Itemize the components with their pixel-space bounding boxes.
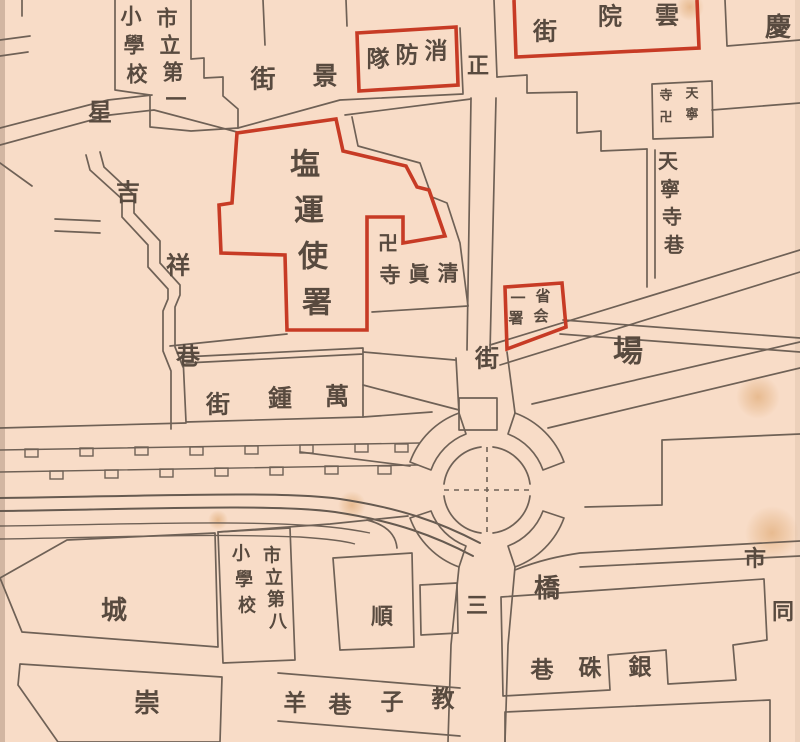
map-label-fire-brigade-box-label: 防 — [396, 42, 419, 69]
map-label-fire-brigade-box-label: 消 — [425, 38, 448, 65]
map-label-school-8-col-left: 小 — [232, 544, 250, 565]
stain-spot — [676, 0, 704, 21]
map-label-school-1-col-right: 一 — [166, 87, 187, 112]
map-label-yunyuan-street-box-label: 雲 — [655, 1, 679, 30]
paper-stains — [208, 0, 799, 560]
map-label-yinzhu-lane: 硃 — [579, 655, 603, 682]
map-label-salt-transport-office: 使 — [297, 240, 329, 275]
map-label-school-8-col-right: 第 — [267, 589, 285, 611]
map-label-wanzhong-street: 鍾 — [268, 384, 292, 413]
map-label-shenghui-box-col-right: 省 — [534, 287, 550, 305]
map-label-san: 三 — [466, 593, 488, 619]
map-labels: 市立第一小學校星景街消防隊正雲院街慶天寧寺卍天寧寺巷塩運使署卍清眞寺省会一署街場… — [88, 1, 794, 720]
map-label-salt-transport-office: 署 — [302, 286, 332, 321]
mosque-south-street — [372, 306, 468, 312]
map-label-yunyuan-street-box-label: 院 — [598, 2, 622, 31]
stain-spot — [208, 510, 228, 530]
map-label-jixiang-lane: 祥 — [166, 251, 190, 280]
chong-block — [18, 664, 222, 742]
salt-office-red-polygon — [219, 119, 445, 330]
map-label-tianning-temple-box-col-right: 寧 — [685, 107, 698, 123]
map-label-yang: 羊 — [284, 690, 307, 717]
map-label-shi-right-edge: 市 — [744, 546, 766, 572]
map-label-tianning-temple-lane: 巷 — [663, 233, 685, 257]
map-label-school-8-col-right: 八 — [269, 612, 288, 633]
map-label-shenghui-box-col-left: 一 — [510, 289, 525, 307]
map-label-jixiang-lane: 巷 — [175, 342, 201, 371]
map-label-yinzhu-lane: 巷 — [530, 657, 555, 684]
map-label-mosque: 寺 — [380, 263, 401, 288]
map-label-zheng: 正 — [467, 53, 489, 79]
map-label-school-1-col-left: 學 — [124, 33, 145, 58]
map-label-salt-transport-office: 塩 — [290, 148, 320, 183]
map-label-shun: 順 — [371, 604, 394, 630]
map-label-tianning-temple-lane: 天 — [658, 149, 679, 173]
map-label-fire-brigade-box-label: 隊 — [367, 46, 391, 73]
tianning-lane-road — [647, 149, 655, 287]
map-label-shenghui-box-col-left: 署 — [507, 309, 523, 327]
map-label-jiaozi-lane: 子 — [381, 689, 404, 716]
bottom-right-building — [505, 700, 770, 742]
map-label-jing-street: 景 — [312, 62, 337, 91]
map-label-mosque: 清 — [438, 261, 459, 286]
zheng-street-main — [467, 98, 496, 352]
cheng-block — [0, 533, 218, 647]
map-label-yunyuan-street-box-label: 街 — [532, 17, 557, 46]
map-label-school-1-col-right: 市 — [157, 6, 178, 31]
map-label-tianning-temple-box-col-left: 卍 — [659, 111, 672, 126]
map-label-star: 星 — [88, 98, 112, 127]
map-label-school-8-col-right: 市 — [263, 545, 281, 567]
map-label-jiaozi-lane: 教 — [432, 686, 456, 713]
map-label-tianning-temple-box-col-right: 天 — [685, 87, 699, 102]
map-label-tianning-temple-box-col-left: 寺 — [659, 88, 672, 104]
plaza-ring-ne — [508, 413, 564, 470]
shun-block — [333, 553, 414, 650]
map-label-cheng: 城 — [101, 596, 127, 626]
paper-edges — [0, 0, 800, 742]
map-label-school-1-col-right: 第 — [163, 60, 184, 85]
map-label-mosque-swastika: 卍 — [378, 231, 398, 255]
map-label-jixiang-lane: 吉 — [116, 178, 140, 207]
stepped-building-outline — [497, 75, 647, 151]
right-edge-shadow — [795, 0, 800, 742]
map-label-school-1-col-left: 小 — [121, 4, 142, 29]
map-label-mosque: 眞 — [409, 262, 430, 287]
east-branch-street — [560, 320, 800, 352]
map-label-wanzhong-street: 街 — [205, 390, 230, 419]
map-label-school-1-col-left: 校 — [127, 62, 149, 87]
plaza-ring-se — [508, 511, 564, 567]
map-label-jie-junction: 街 — [474, 344, 499, 373]
lane-fragments — [263, 0, 347, 45]
map-label-jiaozi-lane: 巷 — [328, 692, 353, 719]
map-label-tianning-temple-lane: 寧 — [660, 177, 680, 201]
left-edge-shadow — [0, 0, 5, 742]
map-label-school-1-col-right: 立 — [160, 33, 181, 58]
map-label-yinzhu-lane: 銀 — [629, 654, 652, 681]
map-label-school-8-col-left: 學 — [235, 570, 253, 591]
rail-track — [0, 535, 355, 544]
map-label-chong: 崇 — [134, 689, 160, 719]
platform-edges — [0, 443, 420, 472]
map-label-qing-char: 慶 — [765, 12, 791, 43]
map-label-school-8-col-left: 校 — [238, 595, 257, 617]
map-label-tong-right-edge: 同 — [772, 599, 794, 625]
map-label-salt-transport-office: 運 — [294, 194, 324, 229]
map-label-tianning-temple-lane: 寺 — [662, 205, 682, 229]
map-label-qiao: 橋 — [534, 574, 561, 604]
map-label-school-8-col-right: 立 — [265, 567, 283, 589]
map-label-chang: 場 — [613, 335, 643, 370]
map-label-shenghui-box-col-right: 会 — [533, 307, 548, 325]
plaza-dashed-cross — [444, 447, 530, 533]
east-block-outline — [585, 434, 800, 507]
plaza-north-building — [459, 398, 497, 430]
map-canvas: 市立第一小學校星景街消防隊正雲院街慶天寧寺卍天寧寺巷塩運使署卍清眞寺省会一署街場… — [0, 0, 800, 742]
map-page: 市立第一小學校星景街消防隊正雲院街慶天寧寺卍天寧寺巷塩運使署卍清眞寺省会一署街場… — [0, 0, 800, 742]
zheng-street-upper — [460, 0, 497, 93]
map-label-wanzhong-street: 萬 — [325, 382, 349, 411]
plaza-ring-nw — [410, 413, 466, 470]
map-label-jing-street: 街 — [249, 65, 275, 94]
west-side-lines — [0, 163, 100, 233]
